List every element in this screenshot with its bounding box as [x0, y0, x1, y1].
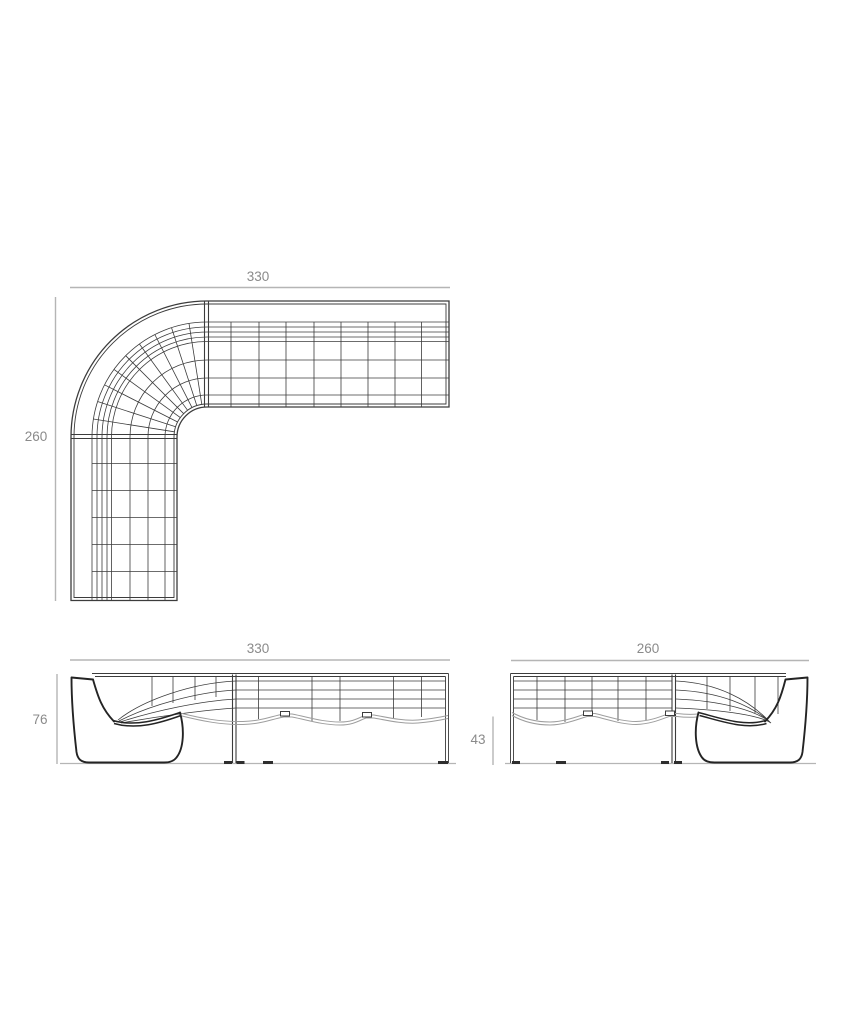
plan-view: 330 260 [25, 269, 450, 601]
drawing-canvas: 330 260 330 76 [0, 0, 853, 1024]
plan-depth-dim-label: 260 [25, 429, 48, 444]
plan-outline [71, 301, 449, 601]
plan-seat-columns [231, 322, 422, 407]
side-elevation-view: 260 43 [470, 641, 816, 765]
side-drape-tab-1 [584, 711, 593, 716]
side-module-seam [672, 675, 676, 764]
front-foot-2 [237, 761, 245, 764]
front-backrest-grid-rows [237, 681, 446, 708]
front-foot-3 [263, 761, 273, 764]
front-width-dim-label: 330 [247, 641, 270, 656]
front-seat-drape-line [180, 713, 448, 725]
plan-seat-lines [130, 360, 449, 600]
plan-drawing [71, 301, 449, 601]
front-elevation-view: 330 76 [32, 641, 456, 764]
side-foot-3 [661, 761, 669, 764]
side-top-and-edges [511, 674, 787, 764]
front-drape-tab-1 [281, 712, 290, 717]
side-width-dim-label: 260 [637, 641, 660, 656]
front-elevation-drawing [60, 674, 456, 765]
side-corner-fan-curves [676, 681, 771, 723]
side-end-profile-shell [696, 678, 808, 763]
front-height-dim-label: 76 [32, 712, 47, 727]
front-drape-tab-2 [363, 713, 372, 718]
plan-seat-rows [92, 464, 177, 572]
front-foot-1 [224, 761, 232, 764]
side-backrest-grid-rows [514, 681, 672, 708]
side-elevation-dimensions: 260 43 [470, 641, 809, 765]
plan-backrest-tuft-lines [92, 322, 449, 600]
front-foot-4 [438, 761, 448, 764]
front-module-seam [233, 675, 237, 764]
side-seat-height-dim-label: 43 [470, 732, 485, 747]
plan-width-dim-label: 330 [247, 269, 270, 284]
sofa-technical-drawing: 330 260 330 76 [0, 0, 853, 1024]
front-elevation-dimensions: 330 76 [32, 641, 450, 764]
front-corner-fan-ticks [152, 677, 216, 707]
side-drape-tab-2 [666, 711, 675, 716]
side-elevation-drawing [505, 674, 816, 765]
side-foot-1 [512, 761, 520, 764]
side-foot-4 [674, 761, 682, 764]
side-foot-2 [556, 761, 566, 764]
